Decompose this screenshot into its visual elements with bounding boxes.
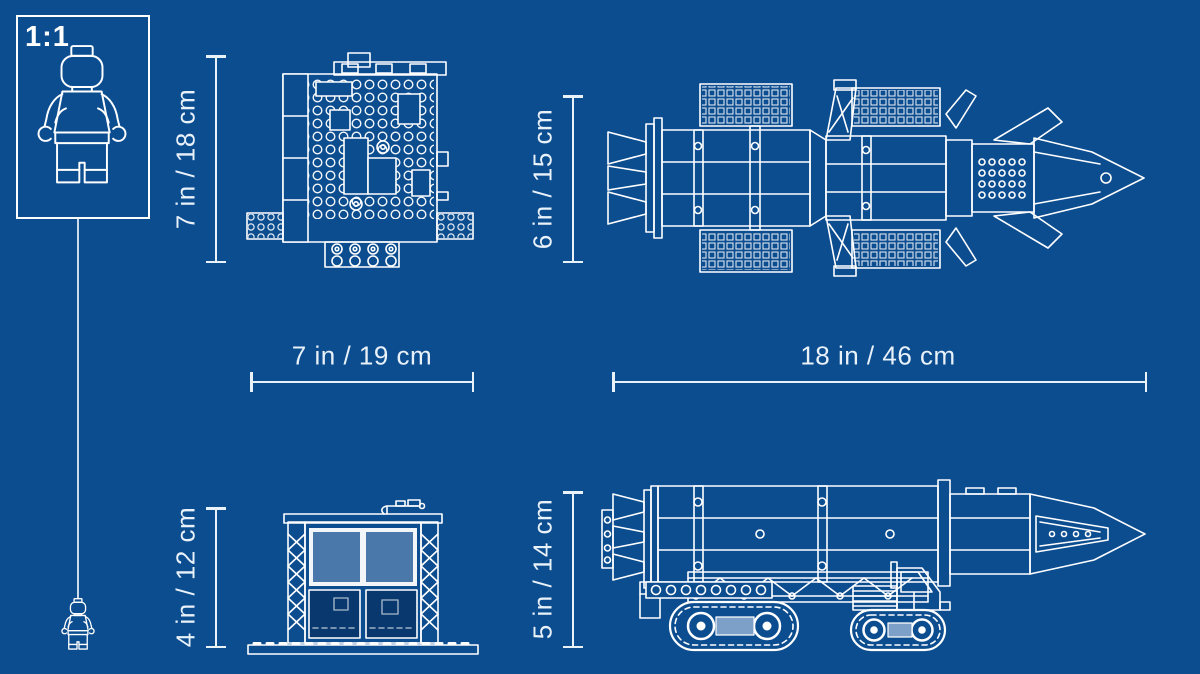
dim-transporter-side-height-line bbox=[563, 491, 583, 648]
transporter-side-view-drawing bbox=[600, 480, 1148, 658]
dim-transporter-top-height-label: 6 in / 15 cm bbox=[528, 109, 559, 249]
dim-building-side-height-label: 4 in / 12 cm bbox=[171, 507, 202, 647]
dim-building-height-line bbox=[206, 55, 226, 263]
minifig-icon bbox=[33, 41, 131, 199]
dim-transporter-length-line bbox=[612, 372, 1147, 392]
blueprint-diagram: 1:1 7 in / 18 cm bbox=[0, 0, 1200, 674]
building-side-view-drawing bbox=[246, 498, 480, 656]
dim-transporter-side-height-label: 5 in / 14 cm bbox=[528, 499, 559, 639]
dim-building-width-line bbox=[250, 372, 474, 392]
building-top-view-drawing bbox=[246, 52, 478, 268]
minifig-small-icon bbox=[59, 598, 97, 654]
scale-connector-line bbox=[77, 218, 79, 598]
dim-building-side-height-line bbox=[206, 507, 226, 648]
dim-transporter-length-label: 18 in / 46 cm bbox=[800, 341, 955, 372]
dim-transporter-top-height-line bbox=[563, 95, 583, 263]
transporter-top-view-drawing bbox=[600, 80, 1148, 276]
dim-building-height-label: 7 in / 18 cm bbox=[171, 89, 202, 229]
dim-building-width-label: 7 in / 19 cm bbox=[292, 341, 432, 372]
scale-1to1-box: 1:1 bbox=[16, 15, 150, 219]
